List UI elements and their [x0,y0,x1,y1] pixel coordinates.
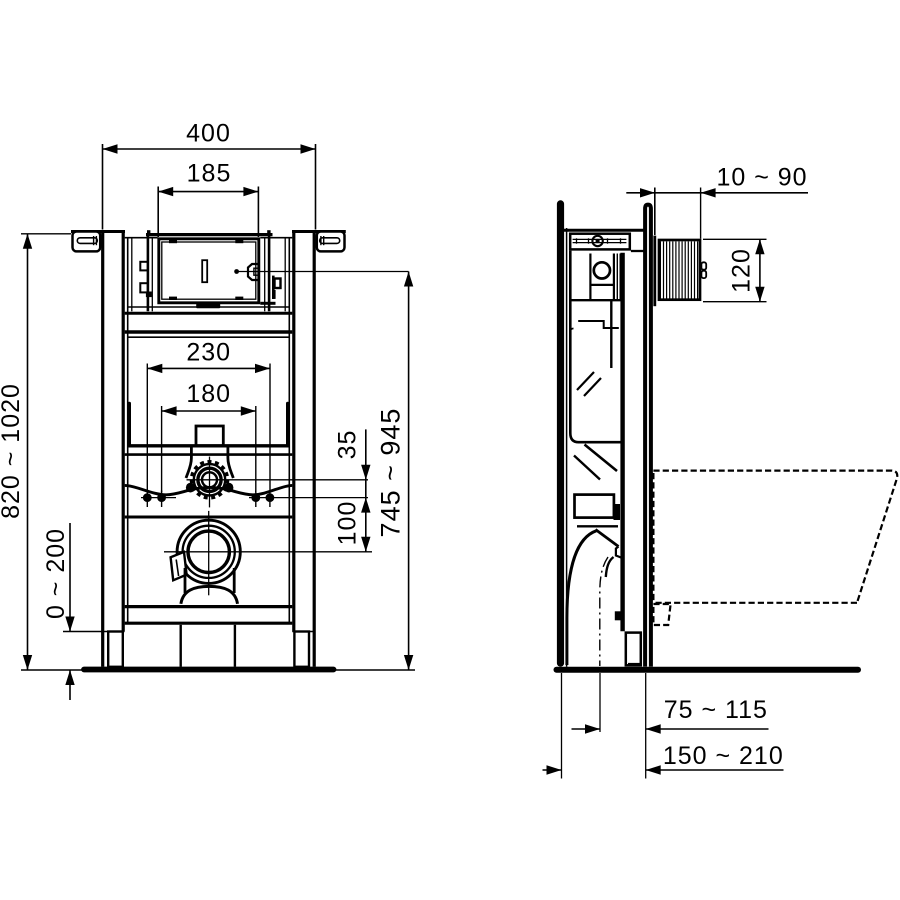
svg-text:185: 185 [187,160,232,188]
svg-text:100: 100 [334,501,362,546]
svg-text:400: 400 [186,120,231,148]
svg-text:745 ~ 945: 745 ~ 945 [376,408,406,538]
svg-text:75 ~ 115: 75 ~ 115 [664,696,768,724]
svg-text:180: 180 [186,380,231,408]
svg-text:35: 35 [334,430,362,460]
svg-text:820 ~ 1020: 820 ~ 1020 [0,383,25,519]
svg-text:230: 230 [186,338,231,366]
svg-text:10 ~ 90: 10 ~ 90 [716,163,807,191]
svg-text:150 ~ 210: 150 ~ 210 [663,742,784,770]
svg-text:0 ~ 200: 0 ~ 200 [42,528,70,619]
svg-text:120: 120 [728,248,756,293]
